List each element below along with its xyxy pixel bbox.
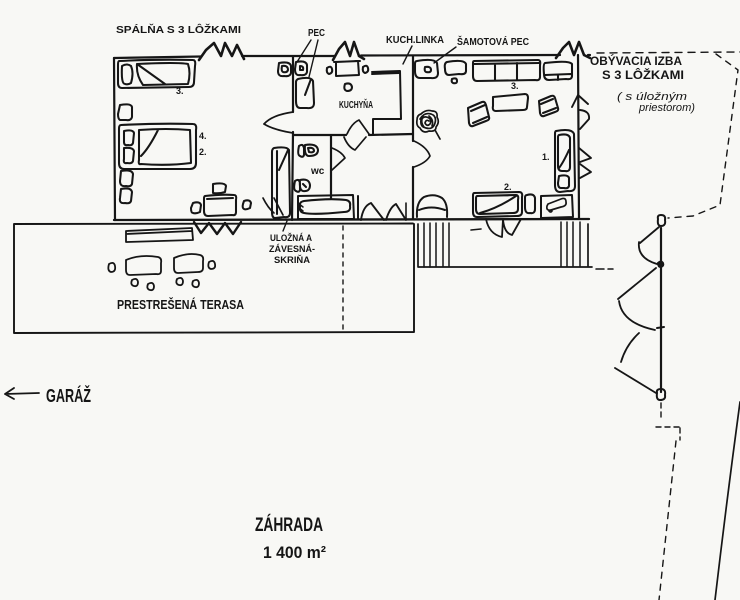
svg-text:1.: 1. xyxy=(542,152,550,162)
svg-text:S 3 LÔŽKAMI: S 3 LÔŽKAMI xyxy=(602,69,684,82)
svg-text:2.: 2. xyxy=(504,182,512,192)
svg-text:GARÁŽ: GARÁŽ xyxy=(46,385,91,406)
svg-text:KUCH.LINKA: KUCH.LINKA xyxy=(386,35,444,46)
svg-text:wc: wc xyxy=(310,166,325,177)
svg-text:ZÁHRADA: ZÁHRADA xyxy=(255,514,323,536)
svg-text:SKRIŇA: SKRIŇA xyxy=(274,254,311,265)
svg-text:ŠAMOTOVÁ PEC: ŠAMOTOVÁ PEC xyxy=(457,35,529,48)
svg-text:OBÝVACIA IZBA: OBÝVACIA IZBA xyxy=(590,55,682,68)
svg-text:KUCHYŇA: KUCHYŇA xyxy=(339,98,373,111)
svg-text:ZÁVESNÁ-: ZÁVESNÁ- xyxy=(269,244,315,254)
svg-text:1 400 m²: 1 400 m² xyxy=(263,543,326,562)
svg-text:priestorom): priestorom) xyxy=(638,102,695,114)
svg-text:3.: 3. xyxy=(176,86,184,96)
svg-text:PRESTREŠENÁ TERASA: PRESTREŠENÁ TERASA xyxy=(117,297,244,312)
svg-text:SPÁLŇA S 3 LÔŽKAMI: SPÁLŇA S 3 LÔŽKAMI xyxy=(116,23,241,36)
svg-text:ULOŽNÁ A: ULOŽNÁ A xyxy=(270,232,312,243)
svg-text:PEC: PEC xyxy=(308,28,325,39)
svg-text:3.: 3. xyxy=(511,81,519,91)
svg-text:4.: 4. xyxy=(199,131,207,141)
svg-text:2.: 2. xyxy=(199,147,207,157)
